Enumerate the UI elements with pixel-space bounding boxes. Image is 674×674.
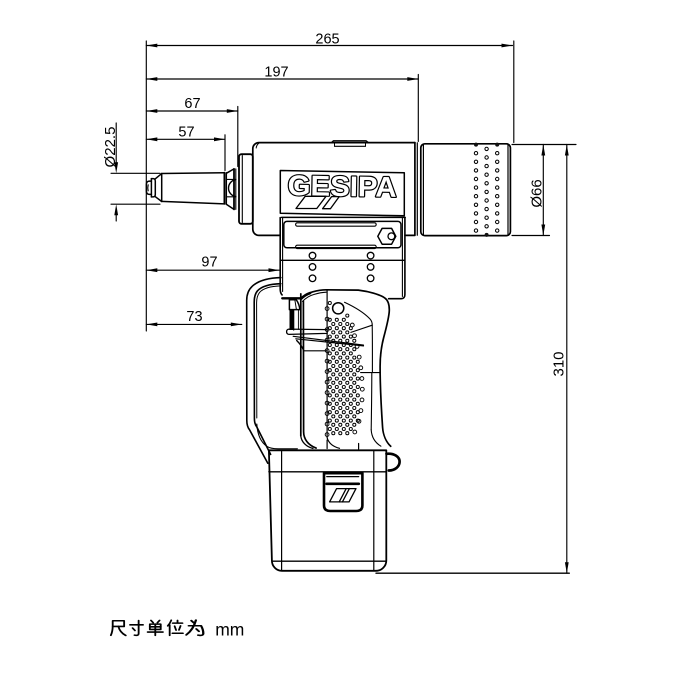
svg-text:67: 67 bbox=[184, 96, 200, 112]
svg-text:Ø22.5: Ø22.5 bbox=[102, 127, 119, 168]
svg-text:57: 57 bbox=[178, 124, 194, 140]
svg-text:197: 197 bbox=[264, 65, 288, 81]
svg-text:Ø66: Ø66 bbox=[529, 179, 546, 207]
svg-text:73: 73 bbox=[186, 309, 202, 325]
svg-text:310: 310 bbox=[551, 351, 568, 376]
svg-text:97: 97 bbox=[201, 255, 217, 271]
svg-text:mm: mm bbox=[215, 619, 244, 639]
svg-text:265: 265 bbox=[315, 32, 339, 48]
